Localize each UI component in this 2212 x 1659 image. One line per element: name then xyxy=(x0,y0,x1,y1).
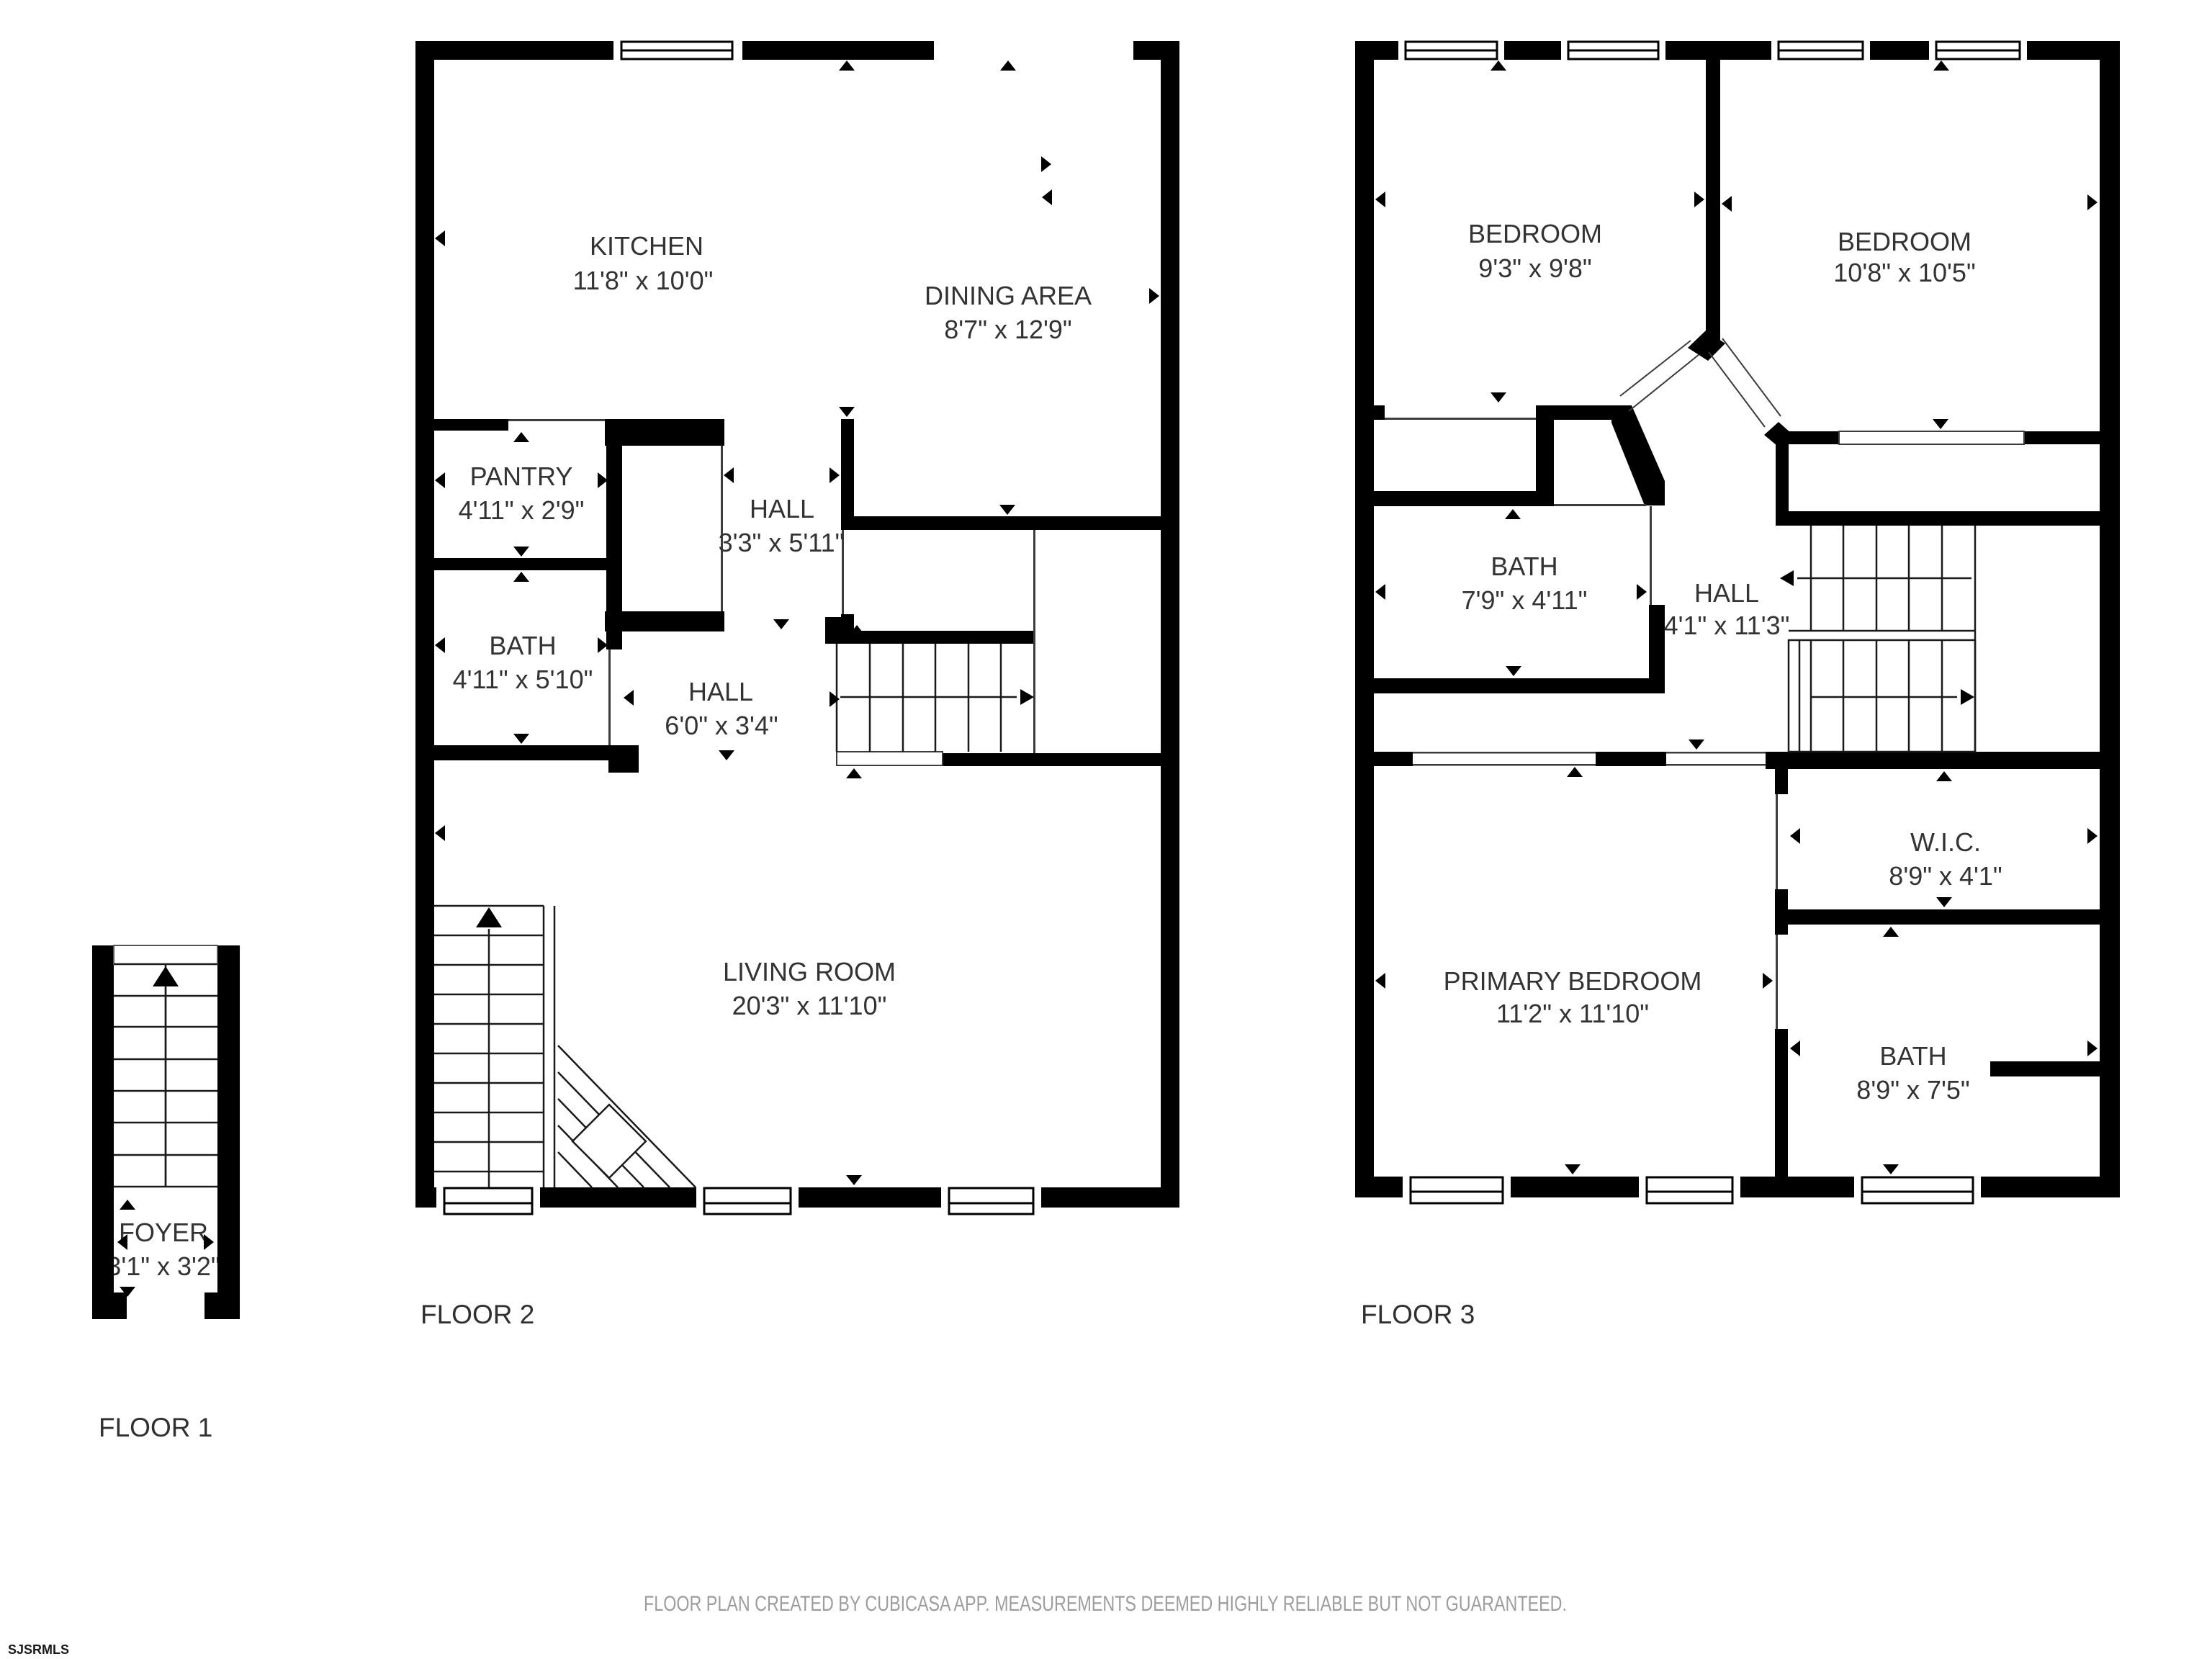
svg-text:9'3" x 9'8": 9'3" x 9'8" xyxy=(1478,253,1591,283)
svg-text:HALL: HALL xyxy=(688,677,753,706)
svg-text:10'8" x 10'5": 10'8" x 10'5" xyxy=(1833,258,1975,287)
svg-text:6'0" x 3'4": 6'0" x 3'4" xyxy=(665,711,778,740)
svg-text:3'1" x 3'2": 3'1" x 3'2" xyxy=(107,1251,220,1281)
svg-text:11'8" x 10'0": 11'8" x 10'0" xyxy=(573,266,714,295)
svg-text:8'9" x 7'5": 8'9" x 7'5" xyxy=(1856,1075,1969,1105)
svg-text:BATH: BATH xyxy=(489,631,556,660)
svg-text:HALL: HALL xyxy=(1694,578,1759,608)
svg-text:HALL: HALL xyxy=(750,494,814,523)
svg-text:20'3" x 11'10": 20'3" x 11'10" xyxy=(732,991,887,1020)
svg-text:7'9" x 4'11": 7'9" x 4'11" xyxy=(1462,585,1588,615)
svg-text:BEDROOM: BEDROOM xyxy=(1468,219,1602,248)
svg-text:8'9" x 4'1": 8'9" x 4'1" xyxy=(1889,861,2002,891)
svg-text:DINING AREA: DINING AREA xyxy=(925,281,1092,310)
svg-text:8'7" x 12'9": 8'7" x 12'9" xyxy=(944,315,1071,344)
svg-text:11'2" x 11'10": 11'2" x 11'10" xyxy=(1496,999,1649,1028)
svg-text:4'11" x 2'9": 4'11" x 2'9" xyxy=(459,495,585,525)
svg-text:4'11" x 5'10": 4'11" x 5'10" xyxy=(453,665,593,694)
svg-text:FLOOR 2: FLOOR 2 xyxy=(421,1300,534,1329)
svg-text:BEDROOM: BEDROOM xyxy=(1838,227,1972,256)
svg-text:BATH: BATH xyxy=(1491,552,1557,581)
svg-text:BATH: BATH xyxy=(1879,1041,1946,1071)
svg-text:PRIMARY BEDROOM: PRIMARY BEDROOM xyxy=(1444,966,1702,996)
svg-text:KITCHEN: KITCHEN xyxy=(590,231,703,261)
svg-text:FLOOR 1: FLOOR 1 xyxy=(99,1413,212,1442)
svg-text:SJSRMLS: SJSRMLS xyxy=(8,1642,69,1657)
svg-text:4'1" x 11'3": 4'1" x 11'3" xyxy=(1664,611,1790,640)
svg-text:PANTRY: PANTRY xyxy=(470,462,573,491)
svg-text:LIVING ROOM: LIVING ROOM xyxy=(723,957,896,986)
svg-text:3'3" x 5'11": 3'3" x 5'11" xyxy=(719,528,845,557)
svg-text:FLOOR PLAN CREATED BY CUBICASA: FLOOR PLAN CREATED BY CUBICASA APP. MEAS… xyxy=(644,1592,1567,1616)
svg-text:FLOOR 3: FLOOR 3 xyxy=(1361,1300,1475,1329)
svg-text:FOYER: FOYER xyxy=(119,1218,208,1247)
svg-text:W.I.C.: W.I.C. xyxy=(1910,827,1981,857)
